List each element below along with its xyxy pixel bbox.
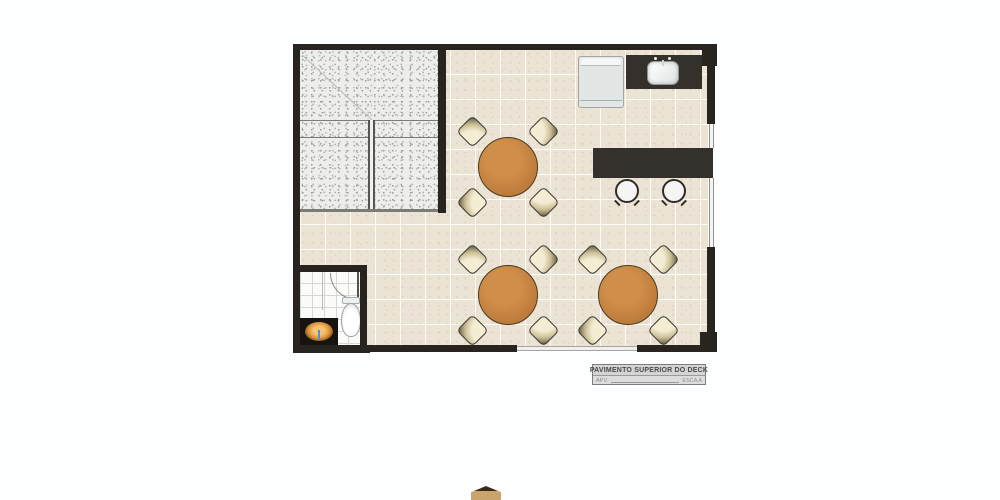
chair	[456, 314, 489, 347]
chair	[456, 186, 489, 219]
vanity-counter	[300, 318, 338, 346]
chair	[576, 243, 609, 276]
top-wall	[293, 44, 710, 50]
chair	[456, 243, 489, 276]
chair	[527, 186, 560, 219]
dining-table-group	[578, 245, 678, 345]
bar-stool	[615, 179, 639, 203]
left-wall	[293, 44, 300, 353]
stair-void-wall	[438, 48, 446, 213]
chair	[647, 243, 680, 276]
right-wall-lower	[707, 247, 715, 336]
bathroom-top-wall	[293, 265, 367, 272]
corner-pillar-top-right	[702, 44, 717, 66]
round-table	[478, 265, 538, 325]
corner-pillar-bottom-right	[700, 332, 717, 352]
chair	[527, 314, 560, 347]
title-left-label: APV.	[596, 378, 608, 384]
chair	[527, 243, 560, 276]
dining-table-group	[458, 117, 558, 217]
chair	[456, 115, 489, 148]
faucet-handle-dot	[668, 57, 671, 60]
right-window-upper	[709, 124, 714, 148]
bathroom-partition-line	[322, 272, 323, 310]
chair	[576, 314, 609, 347]
title-sub-row: APV. ESCA A	[593, 376, 705, 385]
faucet-handle-dot	[654, 57, 657, 60]
stair-void-edge	[300, 209, 446, 212]
bar-counter	[593, 148, 713, 178]
bar-stool	[662, 179, 686, 203]
chair	[527, 115, 560, 148]
refrigerator-door-line	[580, 100, 622, 101]
bottom-wall-right	[637, 345, 702, 352]
stair-railing	[368, 120, 375, 211]
bottom-opening	[517, 346, 637, 351]
floor-plan-page: PAVIMENTO SUPERIOR DO DECK APV. ESCA A	[0, 0, 1000, 500]
right-window-lower	[709, 178, 714, 247]
round-table	[598, 265, 658, 325]
title-right-label: ESCA A	[682, 378, 702, 384]
chair	[647, 314, 680, 347]
title-block: PAVIMENTO SUPERIOR DO DECK APV. ESCA A	[592, 364, 706, 385]
builder-logo-icon	[471, 486, 501, 500]
refrigerator-top-edge	[581, 58, 621, 66]
dining-table-group	[458, 245, 558, 345]
bathroom-right-wall	[360, 265, 367, 352]
refrigerator	[578, 56, 624, 108]
plan-title: PAVIMENTO SUPERIOR DO DECK	[593, 365, 705, 376]
toilet	[341, 303, 361, 337]
vanity-faucet	[318, 330, 320, 340]
bottom-wall-left	[370, 345, 517, 352]
round-table	[478, 137, 538, 197]
title-rule-line	[611, 378, 679, 384]
faucet-spout	[662, 60, 664, 66]
bottom-wall-bathroom	[293, 345, 370, 353]
right-wall-upper	[707, 66, 715, 124]
